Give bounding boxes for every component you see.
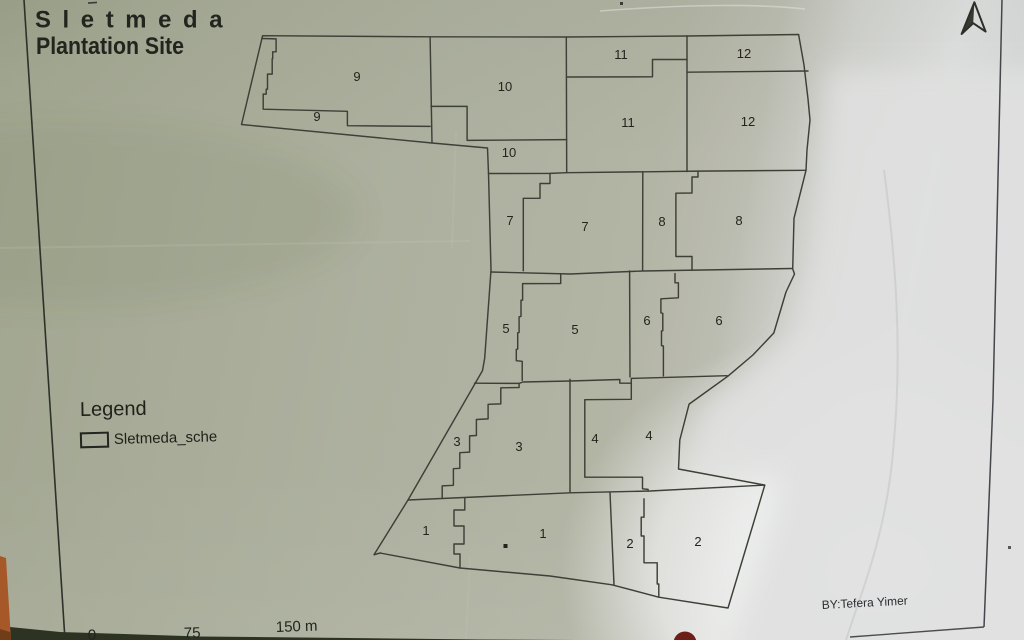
svg-text:2: 2 [694,534,701,549]
svg-text:75: 75 [184,624,201,640]
svg-text:3: 3 [453,434,460,449]
svg-text:6: 6 [715,313,722,328]
svg-text:8: 8 [735,213,742,228]
svg-text:5: 5 [502,321,509,336]
svg-text:1: 1 [539,526,546,541]
svg-text:12: 12 [741,114,755,129]
svg-text:Sletmeda_sche: Sletmeda_sche [114,428,218,448]
svg-text:1: 1 [422,523,429,538]
svg-text:4: 4 [591,431,598,446]
svg-text:8: 8 [658,214,665,229]
svg-text:11: 11 [614,47,628,62]
svg-text:9: 9 [313,109,320,124]
svg-text:10: 10 [498,79,512,94]
svg-text:7: 7 [506,213,513,228]
svg-text:12: 12 [737,46,751,61]
svg-text:150 m: 150 m [276,618,318,636]
svg-text:4: 4 [645,428,652,443]
svg-text:2: 2 [626,536,633,551]
svg-text:0: 0 [88,627,97,640]
svg-text:6: 6 [643,313,650,328]
svg-text:S l e t m e d a: S l e t m e d a [35,7,225,34]
svg-text:11: 11 [621,115,635,130]
svg-text:10: 10 [502,145,516,160]
svg-text:5: 5 [571,322,578,337]
svg-text:7: 7 [581,219,588,234]
svg-text:Legend: Legend [80,398,147,421]
svg-text:Plantation Site: Plantation Site [36,33,184,60]
svg-text:9: 9 [353,69,360,84]
svg-text:3: 3 [515,439,522,454]
